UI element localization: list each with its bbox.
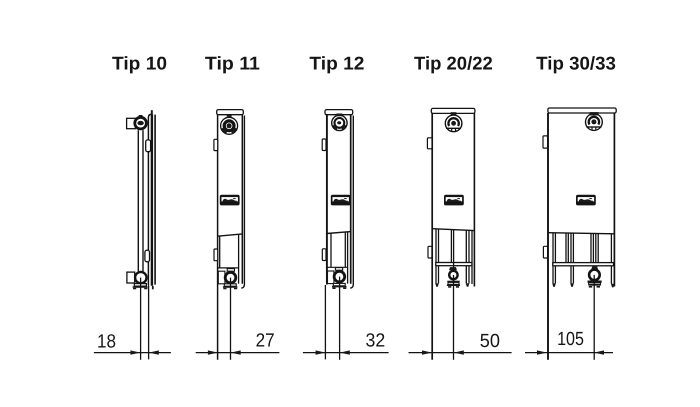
svg-text:Tip 20/22: Tip 20/22 <box>414 53 493 74</box>
svg-text:Tip 10: Tip 10 <box>112 53 167 74</box>
svg-text:Tip 30/33: Tip 30/33 <box>536 53 616 74</box>
svg-text:Tip 11: Tip 11 <box>205 53 260 74</box>
svg-text:Tip 12: Tip 12 <box>309 53 364 74</box>
svg-text:18: 18 <box>97 331 116 352</box>
svg-text:105: 105 <box>557 329 584 350</box>
svg-text:27: 27 <box>256 330 275 351</box>
svg-text:50: 50 <box>480 331 500 352</box>
svg-text:32: 32 <box>366 331 386 352</box>
